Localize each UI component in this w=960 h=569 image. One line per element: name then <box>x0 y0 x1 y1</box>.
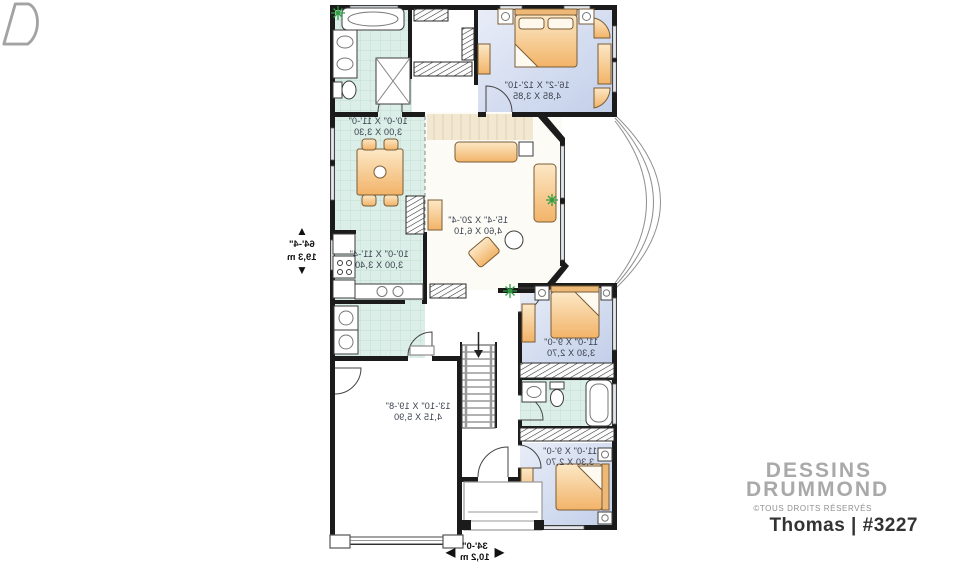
bedroom-3-closet <box>520 428 614 441</box>
height-dimension-metric: 19,3 m <box>287 252 317 263</box>
exterior-details <box>330 346 544 548</box>
arrow-right-icon: ▶ <box>495 547 504 558</box>
kitchen-bar-counter <box>406 196 424 234</box>
double-vanity <box>333 30 357 78</box>
room-dim-metric: 4,15 X 5,90 <box>370 412 466 423</box>
arrow-up-icon: ▲ <box>296 226 308 237</box>
width-dimension-metric: 10,2 m <box>460 552 490 563</box>
room-dim-imperial: 16'-2" X 12'-10" <box>489 80 585 91</box>
toilet <box>550 382 564 389</box>
room-dim-metric: 4,60 X 6,10 <box>430 226 526 237</box>
room-dim-metric: 3,00 X 3,40 <box>331 260 427 271</box>
brand-line2: DRUMMOND <box>746 480 872 499</box>
room-dim-metric: 4,85 X 3,85 <box>489 91 585 102</box>
width-dimension-imperial: 34'-0" <box>462 541 488 552</box>
dining-chair <box>362 139 376 150</box>
dining-chair <box>384 139 398 150</box>
nightstand <box>598 512 612 524</box>
room-dim-imperial: 11'-0" X 9'-0" <box>523 337 619 348</box>
room-dim-metric: 3,00 X 3,30 <box>330 127 426 138</box>
curved-terrace-arcs <box>615 115 661 289</box>
height-dimension: ▲ 64'-4" 19,3 m ▼ <box>280 226 324 276</box>
room-label-living-room: 15'-4" X 20'-4" 4,60 X 6,10 <box>430 215 526 237</box>
room-dim-imperial: 10'-0" X 11'-0" <box>330 116 426 127</box>
arrow-left-icon: ◀ <box>446 547 455 558</box>
plan-title: Thomas | #3227 <box>758 515 918 537</box>
loveseat <box>534 164 556 222</box>
height-dimension-imperial: 64'-4" <box>289 239 315 250</box>
nightstand <box>579 9 594 24</box>
toilet <box>333 82 342 98</box>
porch-post <box>534 520 544 530</box>
dryer <box>334 330 358 354</box>
room-label-master-bedroom: 16'-2" X 12'-10" 4,85 X 3,85 <box>489 80 585 102</box>
bench <box>598 44 611 84</box>
room-label-bedroom-2: 11'-0" X 9'-0" 3,30 X 2,70 <box>523 337 619 359</box>
nightstand <box>601 286 612 300</box>
brand-wordmark: DESSINS DRUMMOND <box>746 461 872 499</box>
side-table <box>519 142 533 156</box>
bedroom-2-furniture <box>522 286 612 342</box>
copyright-notice: ©TOUS DROITS RÉSERVÉS <box>746 504 872 513</box>
bed-headboard <box>551 286 599 292</box>
room-dim-imperial: 13'-10" X 19'-8" <box>370 401 466 412</box>
room-dim-metric: 3,30 X 2,70 <box>523 348 619 359</box>
bedroom-2-closet <box>520 363 614 378</box>
floorplan-canvas: 16'-2" X 12'-10" 4,85 X 3,85 10'-0" X 11… <box>0 0 960 569</box>
room-label-garage: 13'-10" X 19'-8" 4,15 X 5,90 <box>370 401 466 423</box>
vanity <box>522 382 546 402</box>
stairs <box>462 332 495 428</box>
room-dim-imperial: 11'-0" X 9'-0" <box>522 446 618 457</box>
nightstand <box>498 9 513 24</box>
room-dim-imperial: 10'-0" X 11'-4" <box>331 249 427 260</box>
drummond-d-logo-icon <box>0 0 42 48</box>
laundry-appliances <box>334 306 358 354</box>
nightstand <box>535 286 549 300</box>
room-dim-imperial: 15'-4" X 20'-4" <box>430 215 526 226</box>
master-bed-headboard <box>515 9 577 15</box>
front-porch <box>464 482 542 530</box>
room-label-bedroom-3: 11'-0" X 9'-0" 3,30 X 2,70 <box>522 446 618 468</box>
bed-headboard <box>602 464 609 510</box>
room-label-dining-room: 10'-0" X 11'-0" 3,00 X 3,30 <box>330 116 426 138</box>
closet-dresser <box>478 44 490 74</box>
arrow-down-icon: ▼ <box>296 265 308 276</box>
washer <box>334 306 358 330</box>
room-dim-metric: 3,30 X 2,70 <box>522 457 618 468</box>
bathtub <box>342 8 404 30</box>
dining-chair <box>362 195 376 206</box>
porch-post <box>461 520 471 530</box>
dining-chair <box>384 195 398 206</box>
kitchen-counter <box>355 284 423 299</box>
garage-step <box>410 346 434 355</box>
porch-pilaster <box>330 535 350 548</box>
width-dimension: ◀ 34'-0" 10,2 m ▶ <box>418 541 532 563</box>
kitchen-counter <box>333 280 355 298</box>
sofa <box>455 142 517 162</box>
room-label-kitchen: 10'-0" X 11'-4" 3,00 X 3,40 <box>331 249 427 271</box>
